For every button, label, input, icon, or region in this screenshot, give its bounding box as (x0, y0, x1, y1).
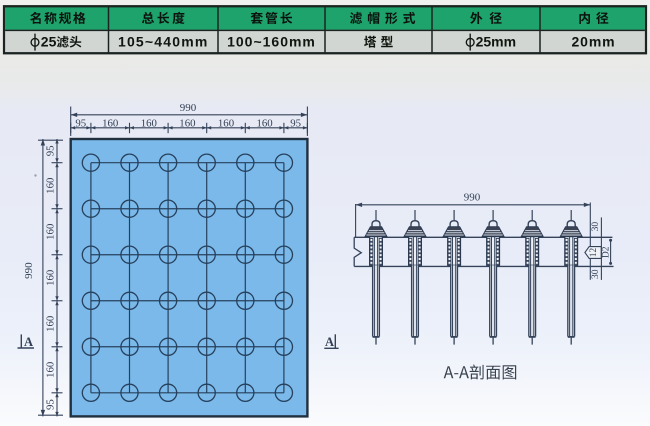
svg-text:105~440mm: 105~440mm (118, 34, 209, 50)
svg-text:160: 160 (256, 117, 272, 129)
svg-text:A: A (325, 335, 334, 349)
svg-text:95: 95 (290, 117, 301, 129)
svg-text:12: 12 (588, 248, 598, 258)
svg-text:100~160mm: 100~160mm (227, 34, 316, 50)
svg-text:A: A (24, 335, 33, 349)
svg-text:30: 30 (590, 269, 601, 279)
svg-text:25: 25 (41, 34, 57, 50)
svg-text:25mm: 25mm (476, 34, 516, 50)
svg-text:990: 990 (464, 192, 481, 204)
svg-text:30: 30 (590, 222, 601, 232)
svg-text:160: 160 (44, 178, 56, 194)
svg-text:160: 160 (179, 117, 195, 129)
svg-text:990: 990 (23, 262, 35, 279)
svg-text:160: 160 (44, 316, 56, 332)
svg-text:20mm: 20mm (571, 34, 615, 50)
svg-text:95: 95 (75, 117, 86, 129)
svg-text:160: 160 (102, 117, 118, 129)
svg-text:160: 160 (44, 362, 56, 378)
svg-text:160: 160 (218, 117, 234, 129)
svg-text:160: 160 (44, 270, 56, 286)
svg-text:990: 990 (180, 102, 197, 114)
svg-text:160: 160 (141, 117, 157, 129)
svg-text:95: 95 (44, 399, 56, 410)
svg-text:95: 95 (44, 145, 56, 156)
svg-text:160: 160 (44, 224, 56, 240)
svg-text:D2: D2 (600, 246, 611, 258)
